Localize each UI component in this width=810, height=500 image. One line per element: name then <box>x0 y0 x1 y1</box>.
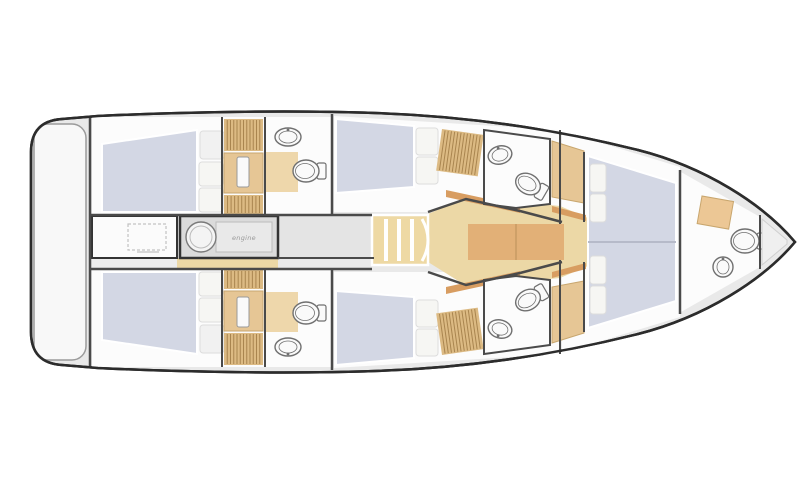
galley-caption-marks <box>137 251 159 253</box>
mid-berth-pillow-1-mirror <box>416 329 438 356</box>
aft-head-toilet <box>293 160 326 182</box>
aft-steps-mirror <box>224 270 263 289</box>
fwd-berth-pillow-4 <box>590 286 606 314</box>
mid-locker-mirror <box>552 281 584 343</box>
fwd-berth-pillow-2 <box>590 194 606 222</box>
bow-sink <box>713 257 733 277</box>
aft-berth-headboard <box>200 131 224 159</box>
aft-berth-pillow-1 <box>199 162 223 186</box>
mid-berth-pillow-2-mirror <box>416 300 438 327</box>
aft-companionway-ladder <box>224 119 263 151</box>
aft-head-sink-mirror <box>275 338 301 356</box>
stair-tread-2 <box>397 219 401 261</box>
aft-companionway-ladder-mirror <box>224 333 263 365</box>
engine-room-label: engine <box>232 234 256 242</box>
mid-berth <box>336 119 414 193</box>
aft-wardrobe-door-mirror <box>237 297 249 327</box>
mid-locker <box>552 141 584 203</box>
mid-berth-mirror <box>336 291 414 365</box>
aft-berth-mirror <box>102 272 197 354</box>
aft-steps <box>224 195 263 214</box>
fwd-berth-pillow-1 <box>590 164 606 192</box>
mid-wardrobe <box>436 129 483 176</box>
aft-head-sink <box>275 128 301 146</box>
aft-berth-pillow-2-mirror <box>199 272 223 296</box>
floor-plan-svg: engine <box>0 0 810 500</box>
transom-platform <box>34 124 86 360</box>
aft-head-toilet-mirror <box>293 302 326 324</box>
mid-berth-pillow-2 <box>416 157 438 184</box>
mid-wardrobe-mirror <box>436 308 483 355</box>
aft-berth-pillow-2 <box>199 188 223 212</box>
stair-tread-1 <box>384 219 388 261</box>
mid-berth-pillow-1 <box>416 128 438 155</box>
aft-wardrobe-door <box>237 157 249 187</box>
aft-berth <box>102 130 197 212</box>
aft-berth-headboard-mirror <box>200 325 224 353</box>
corridor-floor <box>278 216 374 258</box>
stair-tread-3 <box>410 219 414 261</box>
bow-cabinet <box>697 196 733 229</box>
scene-layer <box>31 112 795 373</box>
aft-berth-pillow-1-mirror <box>199 298 223 322</box>
galley-module <box>92 216 177 258</box>
fwd-berth-pillow-3 <box>590 256 606 284</box>
yacht-floor-plan: engine <box>0 0 810 500</box>
